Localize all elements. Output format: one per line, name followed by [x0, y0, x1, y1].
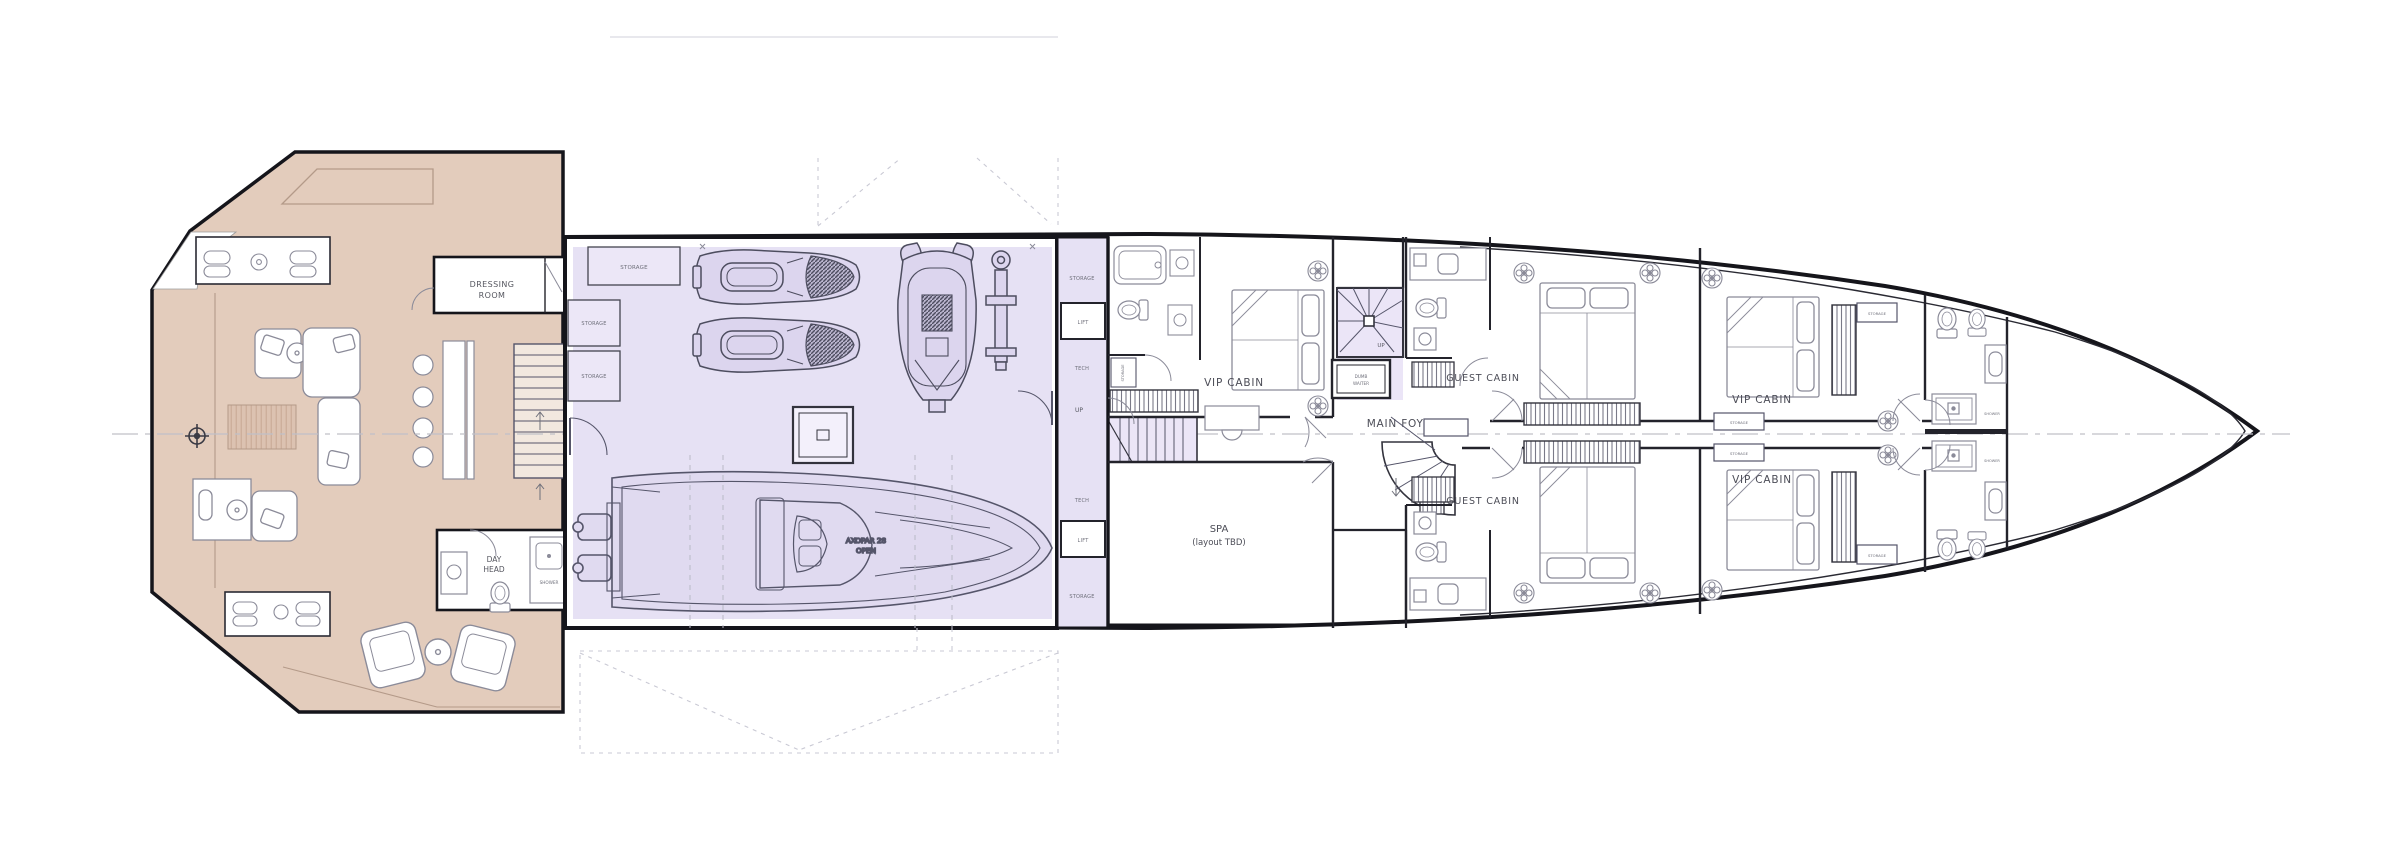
door-fold-envelope-bottom	[580, 628, 1058, 753]
tender-model-label: AXOPAR 28	[846, 536, 887, 545]
deck-lounger-shelf-top	[196, 237, 330, 284]
bed	[1540, 467, 1635, 583]
tech-label: TECH	[1074, 366, 1089, 372]
side-table	[1640, 263, 1660, 283]
bed	[1727, 297, 1819, 397]
bed	[1232, 290, 1324, 390]
dumb-waiter-label2: WAITER	[1353, 381, 1369, 386]
storage-label: STORAGE	[620, 265, 648, 271]
day-head-label2: HEAD	[483, 565, 505, 574]
deck-lounger-shelf-bottom	[225, 592, 330, 636]
lift-label: LIFT	[1078, 538, 1090, 544]
dressing-room: DRESSING ROOM	[412, 257, 570, 313]
storage-label: STORAGE	[1868, 311, 1887, 316]
storage-label: STORAGE	[1069, 594, 1094, 600]
shower-label: SHOWER	[1984, 459, 2000, 463]
shower-label: SHOWER	[1984, 412, 2000, 416]
yacht-floor-plan: DRESSING ROOM DAY HEAD SHOWER	[0, 0, 2400, 862]
dumb-waiter	[1332, 360, 1390, 398]
storage-label: STORAGE	[1121, 364, 1125, 382]
storage-label: STORAGE	[1868, 553, 1887, 558]
day-head-label: DAY	[487, 555, 502, 564]
lift-label: LIFT	[1078, 320, 1090, 326]
vip-cabin-label: VIP CABIN	[1204, 377, 1264, 389]
bar-counter	[443, 341, 474, 479]
spa-label: SPA	[1210, 524, 1229, 535]
aft-deck: DRESSING ROOM DAY HEAD SHOWER	[152, 152, 570, 712]
vip1-wardrobe	[1110, 390, 1198, 412]
side-table	[1308, 261, 1328, 281]
spa-label2: (layout TBD)	[1192, 538, 1245, 548]
guest-bottom-wardrobe	[1524, 441, 1640, 463]
garage-hatch-box	[793, 407, 853, 463]
storage-label: STORAGE	[581, 374, 606, 380]
side-table	[1702, 580, 1722, 600]
up-label: UP	[1377, 343, 1385, 349]
jet-ski	[693, 250, 860, 304]
vip-cabin-label: VIP CABIN	[1732, 394, 1792, 406]
side-table	[1308, 396, 1328, 416]
storage-label: STORAGE	[581, 321, 606, 327]
shower-label: SHOWER	[540, 580, 559, 585]
side-table	[1702, 268, 1722, 288]
jet-ski	[693, 318, 860, 372]
guest-cabin-label: GUEST CABIN	[1446, 373, 1520, 384]
tender-model-label2: OPEN	[856, 546, 876, 555]
rug	[228, 405, 296, 449]
side-table	[1514, 263, 1534, 283]
day-head: DAY HEAD SHOWER	[437, 530, 570, 612]
dressing-room-label2: ROOM	[479, 291, 506, 300]
floor-plan-svg: DRESSING ROOM DAY HEAD SHOWER	[0, 0, 2400, 862]
corridor-table	[1878, 411, 1898, 431]
storage-label: STORAGE	[1069, 276, 1094, 282]
service-strip: STORAGE LIFT TECH UP TECH LIFT STORAGE	[1057, 237, 1108, 628]
up-label: UP	[1075, 407, 1083, 414]
corridor-table	[1878, 445, 1898, 465]
storage-label: STORAGE	[1730, 451, 1749, 456]
dressing-room-label: DRESSING	[470, 280, 515, 289]
guest-stairs[interactable]	[1108, 417, 1197, 462]
guest-cabin-label: GUEST CABIN	[1446, 496, 1520, 507]
tech-label: TECH	[1074, 498, 1089, 504]
vip-cabin-label: VIP CABIN	[1732, 474, 1792, 486]
door-fold-envelope-top	[818, 158, 1058, 230]
dumb-waiter-label: DUMB	[1355, 374, 1368, 379]
guest-top-wardrobe	[1524, 403, 1640, 425]
bed	[1540, 283, 1635, 399]
vip2-wardrobe	[1832, 305, 1856, 395]
side-table	[1514, 583, 1534, 603]
deck-stairs[interactable]	[514, 344, 566, 500]
side-table	[1640, 583, 1660, 603]
storage-label: STORAGE	[1730, 420, 1749, 425]
tender-garage: STORAGE STORAGE STORAGE	[565, 237, 1057, 628]
foyer-cabinet	[1424, 419, 1468, 436]
vip3-wardrobe	[1832, 472, 1856, 562]
